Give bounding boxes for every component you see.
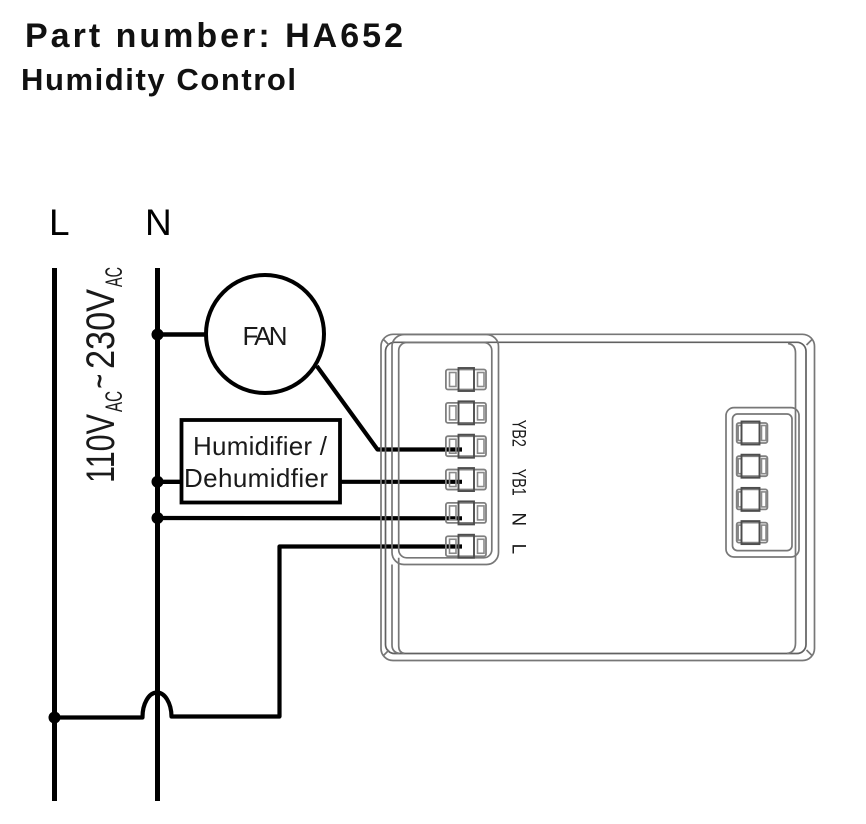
svg-text:YB1: YB1 bbox=[508, 469, 529, 496]
svg-text:110V: 110V bbox=[79, 414, 123, 483]
svg-text:Part number: HA652: Part number: HA652 bbox=[25, 17, 403, 55]
svg-text:~: ~ bbox=[87, 375, 113, 388]
svg-text:L: L bbox=[508, 544, 529, 555]
svg-text:N: N bbox=[508, 512, 529, 526]
svg-text:Humidifier /: Humidifier / bbox=[193, 431, 328, 461]
svg-text:YB2: YB2 bbox=[508, 420, 529, 447]
svg-text:L: L bbox=[49, 202, 70, 243]
svg-text:FAN: FAN bbox=[243, 321, 288, 351]
svg-text:230V: 230V bbox=[79, 289, 123, 369]
svg-text:Humidity Control: Humidity Control bbox=[21, 62, 296, 97]
svg-text:N: N bbox=[145, 202, 172, 243]
svg-text:Dehumidfier: Dehumidfier bbox=[184, 463, 328, 493]
svg-text:AC: AC bbox=[101, 267, 128, 287]
svg-text:AC: AC bbox=[101, 391, 128, 412]
